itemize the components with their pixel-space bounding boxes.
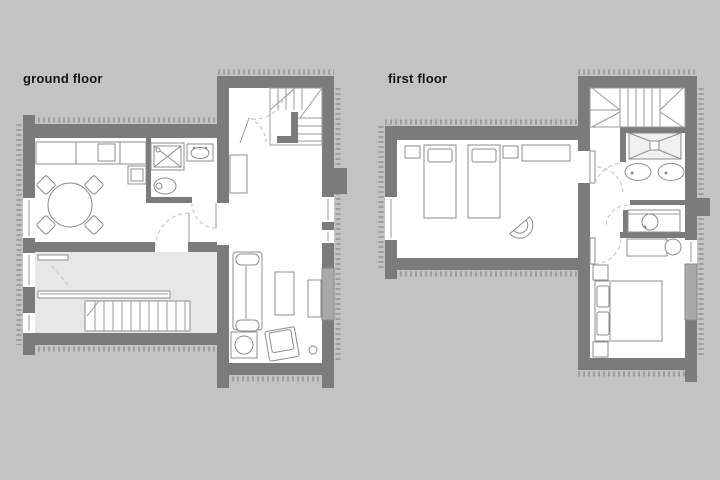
- double-bed: [595, 281, 662, 341]
- sofa: [233, 252, 262, 331]
- stool: [665, 239, 681, 255]
- tv-sideboard: [308, 280, 321, 317]
- washbasin: [187, 144, 213, 161]
- handrail: [38, 291, 170, 298]
- staircase-down: [85, 301, 190, 331]
- window-panel: [685, 264, 697, 320]
- first-floor-plan: [381, 72, 710, 382]
- single-bed: [468, 145, 500, 218]
- nightstand: [405, 146, 420, 158]
- nightstand: [593, 342, 608, 357]
- nightstand: [503, 146, 518, 158]
- toilet: [154, 178, 176, 194]
- kitchen-counter: [36, 142, 146, 164]
- ground-floor-plan: [19, 72, 347, 388]
- floor-plan-canvas: ground floor first floor: [0, 0, 720, 480]
- armchair: [265, 327, 300, 362]
- round-dining-table: [48, 183, 92, 227]
- single-bed: [424, 145, 456, 218]
- window-panel: [322, 268, 334, 320]
- desk: [522, 145, 570, 161]
- dresser: [627, 239, 667, 256]
- sill-shelf: [38, 255, 68, 260]
- wardrobe: [230, 155, 247, 193]
- floor-plans-drawing: [0, 0, 720, 480]
- shower-tray: [629, 133, 681, 159]
- floor-lamp: [309, 346, 317, 354]
- nightstand: [593, 265, 608, 280]
- stove-table: [231, 332, 257, 358]
- coffee-table: [275, 272, 294, 315]
- under-counter-appliance: [128, 166, 146, 184]
